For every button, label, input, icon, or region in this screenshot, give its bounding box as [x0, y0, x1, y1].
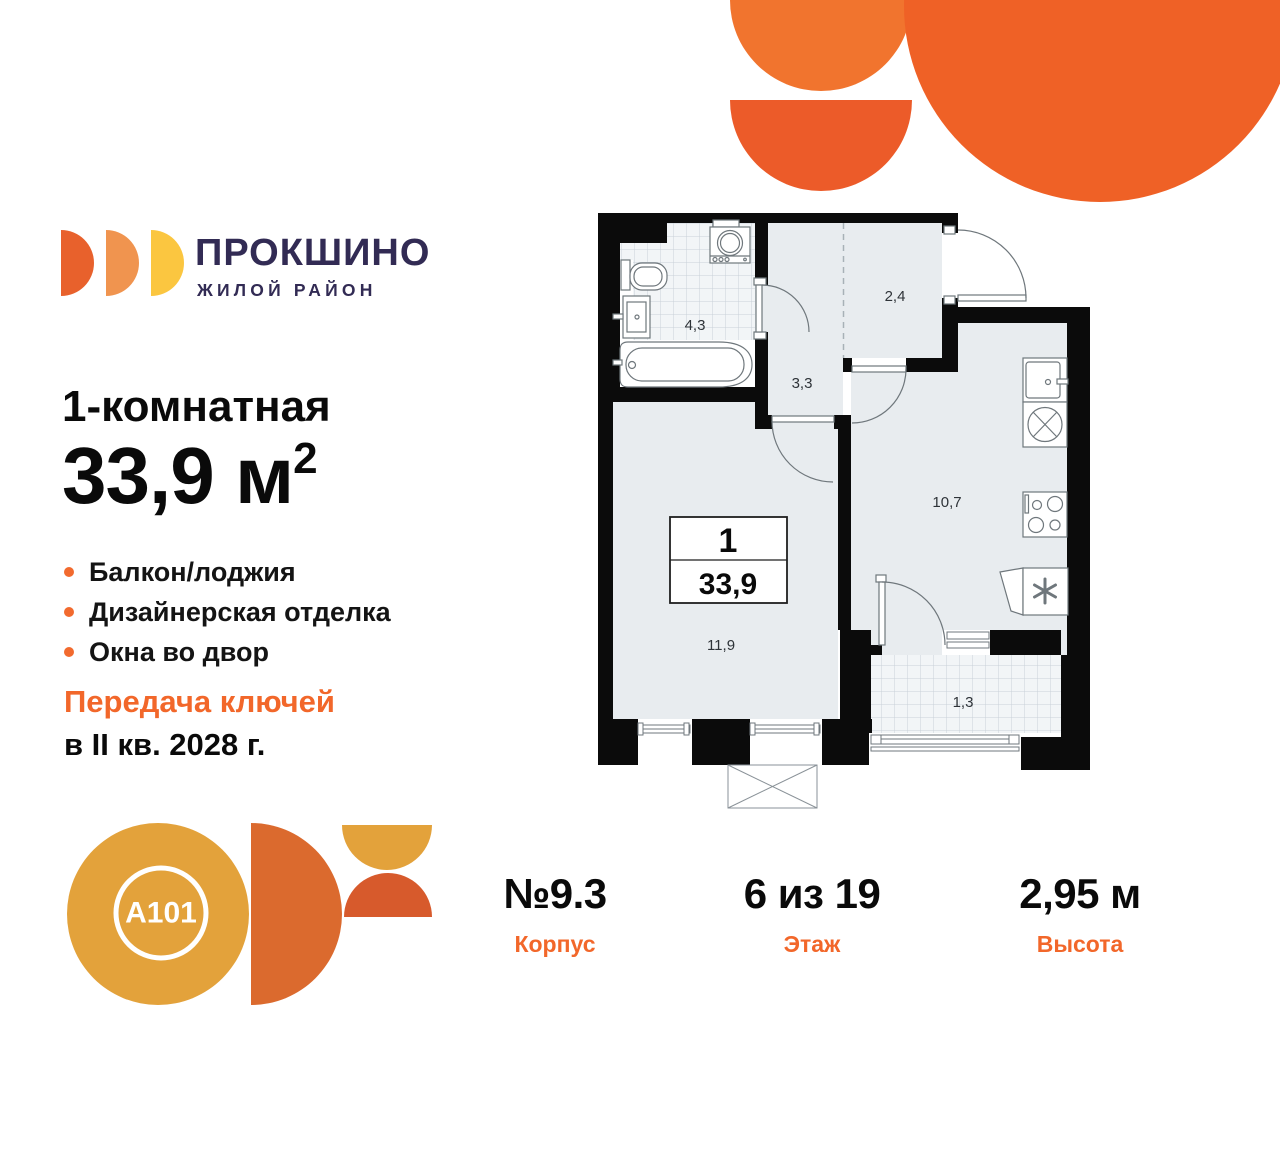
- keys-transfer-title: Передача ключей: [64, 684, 335, 720]
- bullet-dot-icon: [64, 647, 74, 657]
- a101-half-disc: [251, 823, 342, 1005]
- fridge-icon: [1000, 568, 1068, 615]
- room-label-balcony: 1,3: [953, 694, 974, 711]
- bullet-dot-icon: [64, 567, 74, 577]
- listing-headline: 1-комнатная 33,9 м2: [62, 384, 331, 516]
- decor-half-disc-2: [730, 100, 912, 191]
- summary-item-building: №9.3 Корпус: [430, 870, 680, 958]
- room-label-kitchen: 10,7: [932, 494, 961, 511]
- feature-item: Окна во двор: [64, 632, 391, 672]
- room-label-bathroom: 4,3: [685, 317, 706, 334]
- room-label-hall: 3,3: [792, 375, 813, 392]
- entry-door: [944, 226, 1026, 304]
- summary-label: Корпус: [430, 931, 680, 958]
- bullet-dot-icon: [64, 607, 74, 617]
- area-unit: м: [235, 431, 293, 520]
- summary-label: Высота: [955, 931, 1205, 958]
- washing-machine-icon: [710, 220, 750, 263]
- a101-bottom-half-disc: [344, 873, 432, 917]
- feature-label: Дизайнерская отделка: [89, 597, 391, 628]
- toilet-icon: [621, 260, 667, 290]
- hob-icon: [1023, 402, 1067, 447]
- brand-tagline: ЖИЛОЙ РАЙОН: [197, 280, 377, 301]
- features-list: Балкон/лоджия Дизайнерская отделка Окна …: [64, 552, 391, 672]
- living-window-1: [638, 719, 692, 753]
- brand-name: ПРОКШИНО: [195, 232, 430, 275]
- plan-info-box: 1 33,9: [670, 517, 787, 603]
- summary-value: №9.3: [430, 870, 680, 918]
- balcony-glazing: [869, 733, 1021, 765]
- living-window-2: [750, 719, 822, 753]
- brand-logo: ПРОКШИНО ЖИЛОЙ РАЙОН: [58, 228, 478, 308]
- apartment-area-heading: 33,9 м2: [62, 436, 331, 516]
- lower-balcony-outline: [728, 765, 817, 808]
- area-value: 33,9: [62, 431, 214, 520]
- summary-value: 6 из 19: [687, 870, 937, 918]
- summary-item-height: 2,95 м Высота: [955, 870, 1205, 958]
- info-box-area: 33,9: [699, 568, 757, 601]
- bathtub-icon: [613, 342, 752, 387]
- area-superscript: 2: [293, 434, 316, 483]
- kitchen-sink-icon: [1023, 358, 1068, 402]
- apartment-type-heading: 1-комнатная: [62, 384, 331, 430]
- keys-transfer-date: в II кв. 2028 г.: [64, 727, 265, 763]
- summary-item-floor: 6 из 19 Этаж: [687, 870, 937, 958]
- room-label-entry: 2,4: [885, 288, 906, 305]
- summary-label: Этаж: [687, 931, 937, 958]
- floor-plan: 4,3 2,4 3,3 10,7 11,9 1,3 1 33,9: [595, 210, 1095, 810]
- brand-logo-mark: [58, 228, 193, 298]
- feature-item: Балкон/лоджия: [64, 552, 391, 592]
- feature-label: Окна во двор: [89, 637, 269, 668]
- decor-big-disc: [904, 0, 1280, 202]
- kitchen-balcony-window: [942, 630, 990, 655]
- stove-icon: [1023, 492, 1067, 537]
- decor-half-disc-1: [730, 0, 912, 91]
- feature-item: Дизайнерская отделка: [64, 592, 391, 632]
- feature-label: Балкон/лоджия: [89, 557, 296, 588]
- info-box-rooms: 1: [719, 522, 738, 560]
- decor-circles-top-right: [690, 0, 1280, 215]
- summary-value: 2,95 м: [955, 870, 1205, 918]
- a101-top-half-disc: [342, 825, 432, 870]
- developer-logo: A101: [60, 815, 440, 1015]
- a101-text: A101: [125, 897, 197, 930]
- room-label-living: 11,9: [707, 637, 735, 654]
